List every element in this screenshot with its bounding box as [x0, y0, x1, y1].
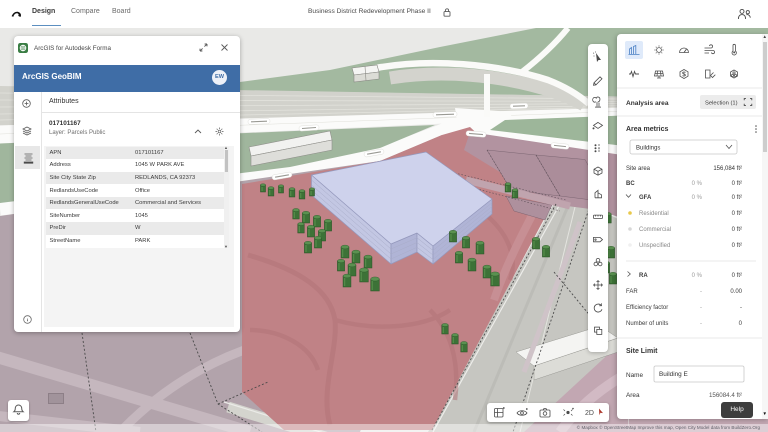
svg-text:Name: Name [626, 372, 643, 379]
svg-text:Site Limit: Site Limit [626, 348, 658, 355]
svg-text:156,084 ft²: 156,084 ft² [713, 166, 742, 172]
svg-text:Building E: Building E [659, 371, 688, 378]
svg-text:-: - [700, 321, 702, 327]
svg-text:Residential: Residential [639, 211, 669, 217]
svg-text:-: - [700, 305, 702, 311]
svg-text:Commercial: Commercial [639, 227, 671, 233]
svg-text:0 ft²: 0 ft² [732, 211, 742, 217]
svg-text:0 %: 0 % [692, 273, 703, 279]
svg-text:Buildings: Buildings [636, 146, 660, 152]
svg-text:2D: 2D [585, 410, 594, 417]
svg-text:0 %: 0 % [692, 181, 703, 187]
svg-text:Area metrics: Area metrics [626, 126, 669, 133]
svg-text:Site area: Site area [626, 166, 651, 172]
svg-text:BC: BC [626, 181, 635, 187]
svg-text:Analysis area: Analysis area [626, 100, 669, 107]
svg-text:0.00: 0.00 [730, 289, 742, 295]
svg-text:FAR: FAR [626, 289, 638, 295]
svg-text:0 ft²: 0 ft² [732, 273, 742, 279]
svg-text:GFA: GFA [639, 195, 652, 201]
svg-text:Efficiency factor: Efficiency factor [626, 305, 668, 311]
svg-text:-: - [740, 305, 742, 311]
svg-text:0 ft²: 0 ft² [732, 243, 742, 249]
svg-text:0 ft²: 0 ft² [732, 181, 742, 187]
svg-text:0 %: 0 % [692, 195, 703, 201]
svg-text:Area: Area [626, 392, 640, 399]
svg-text:0 ft²: 0 ft² [732, 227, 742, 233]
svg-text:0 ft²: 0 ft² [732, 195, 742, 201]
svg-text:Number of units: Number of units [626, 321, 668, 327]
svg-text:Unspecified: Unspecified [639, 243, 670, 249]
svg-text:-: - [700, 289, 702, 295]
svg-text:0: 0 [739, 321, 743, 327]
svg-text:Selection (1): Selection (1) [705, 101, 738, 107]
svg-text:RA: RA [639, 273, 648, 279]
svg-text:156084.4 ft²: 156084.4 ft² [709, 392, 742, 399]
